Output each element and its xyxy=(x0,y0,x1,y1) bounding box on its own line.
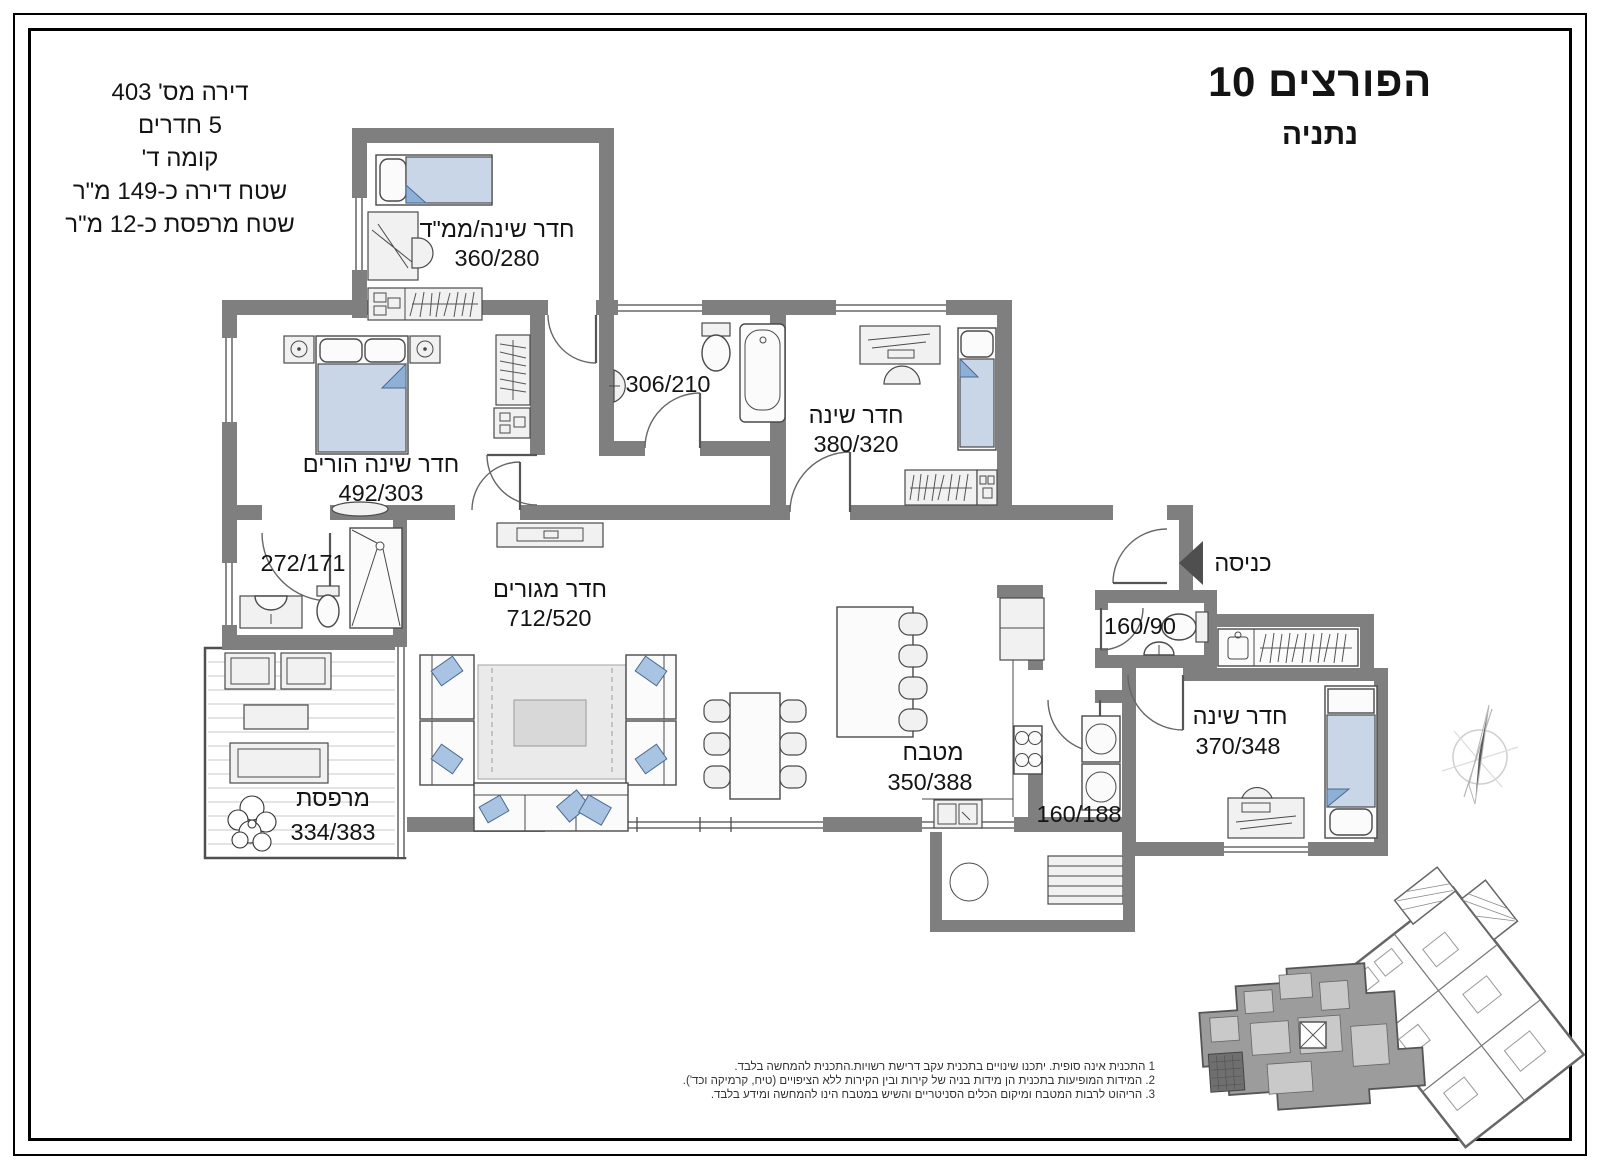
note-line: 2. המידות המופיעות בתכנית הן מידות בניה … xyxy=(560,1074,1155,1088)
toilet-tank xyxy=(702,323,730,336)
note-line: 3. הריהוט לרבות המטבח ומיקום הכלים הסניט… xyxy=(560,1088,1155,1102)
desk xyxy=(1228,798,1304,838)
label-kitchen-dims: 350/388 xyxy=(888,769,973,795)
tv-console xyxy=(497,523,603,547)
label-parents-name: חדר שינה הורים xyxy=(303,451,460,477)
window-bath-main xyxy=(618,300,702,315)
window-mamad xyxy=(352,198,367,270)
compass-icon xyxy=(1442,705,1518,804)
window-balcony-door xyxy=(395,647,407,857)
label-kitchen-name: מטבח xyxy=(902,739,963,765)
label-bath-shower-dims: 272/171 xyxy=(261,550,346,576)
label-mamad-name: חדר שינה/ממ"ד xyxy=(419,216,574,242)
floor-plan-page: הפורצים 10 נתניה דירה מס' 403 5 חדרים קו… xyxy=(0,0,1600,1169)
label-living-name: חדר מגורים xyxy=(493,576,607,602)
kitchen-island xyxy=(837,607,927,737)
washer xyxy=(1082,716,1120,762)
entry-closet xyxy=(1218,629,1358,666)
room-living xyxy=(420,523,806,831)
label-bedroom3-dims: 370/348 xyxy=(1196,733,1281,759)
floor-plan-drawing: חדר שינה/ממ"ד 360/280 חדר שינה הורים 492… xyxy=(0,0,1600,1169)
disclaimer-notes: 1 התכנית אינה סופית. יתכנו שינויים בתכני… xyxy=(560,1060,1155,1102)
label-mamad-dims: 360/280 xyxy=(455,245,540,271)
door-bedroom2 xyxy=(790,452,850,512)
room-laundry xyxy=(1082,716,1120,810)
dining-set xyxy=(704,693,806,799)
window-bedroom2 xyxy=(836,300,946,315)
toilet-bowl xyxy=(702,335,730,371)
toilet-tank xyxy=(1196,612,1208,642)
key-plan xyxy=(1197,849,1600,1147)
fridge xyxy=(1000,598,1044,660)
label-bedroom2-dims: 380/320 xyxy=(814,431,899,457)
window-parents xyxy=(222,338,237,422)
label-bedroom2-name: חדר שינה xyxy=(809,402,904,428)
label-balcony-name: מרפסת xyxy=(296,785,370,811)
door-entrance xyxy=(1113,529,1167,583)
chair xyxy=(1242,788,1272,798)
label-toilet-dims: 160/90 xyxy=(1104,613,1176,639)
room-bath-shower xyxy=(240,528,402,628)
label-living-dims: 712/520 xyxy=(507,605,592,631)
door-mamad xyxy=(548,315,596,363)
label-balcony-dims: 334/383 xyxy=(291,819,376,845)
note-line: 1 התכנית אינה סופית. יתכנו שינויים בתכני… xyxy=(560,1060,1155,1074)
sofa xyxy=(474,783,628,831)
label-bath-main-dims: 306/210 xyxy=(626,371,711,397)
door-bath-main xyxy=(645,393,700,448)
window-bedroom3 xyxy=(1224,842,1308,856)
window-bath-shower xyxy=(222,563,237,625)
label-parents-dims: 492/303 xyxy=(339,480,424,506)
toilet-bowl xyxy=(317,595,339,627)
door-hall xyxy=(472,462,520,510)
door-bedroom3 xyxy=(1128,675,1183,730)
label-bedroom3-name: חדר שינה xyxy=(1193,703,1288,729)
service-balcony xyxy=(930,828,1135,932)
coffee-table xyxy=(514,700,586,746)
label-laundry-dims: 160/188 xyxy=(1037,801,1122,827)
label-entrance: כניסה xyxy=(1214,550,1271,576)
